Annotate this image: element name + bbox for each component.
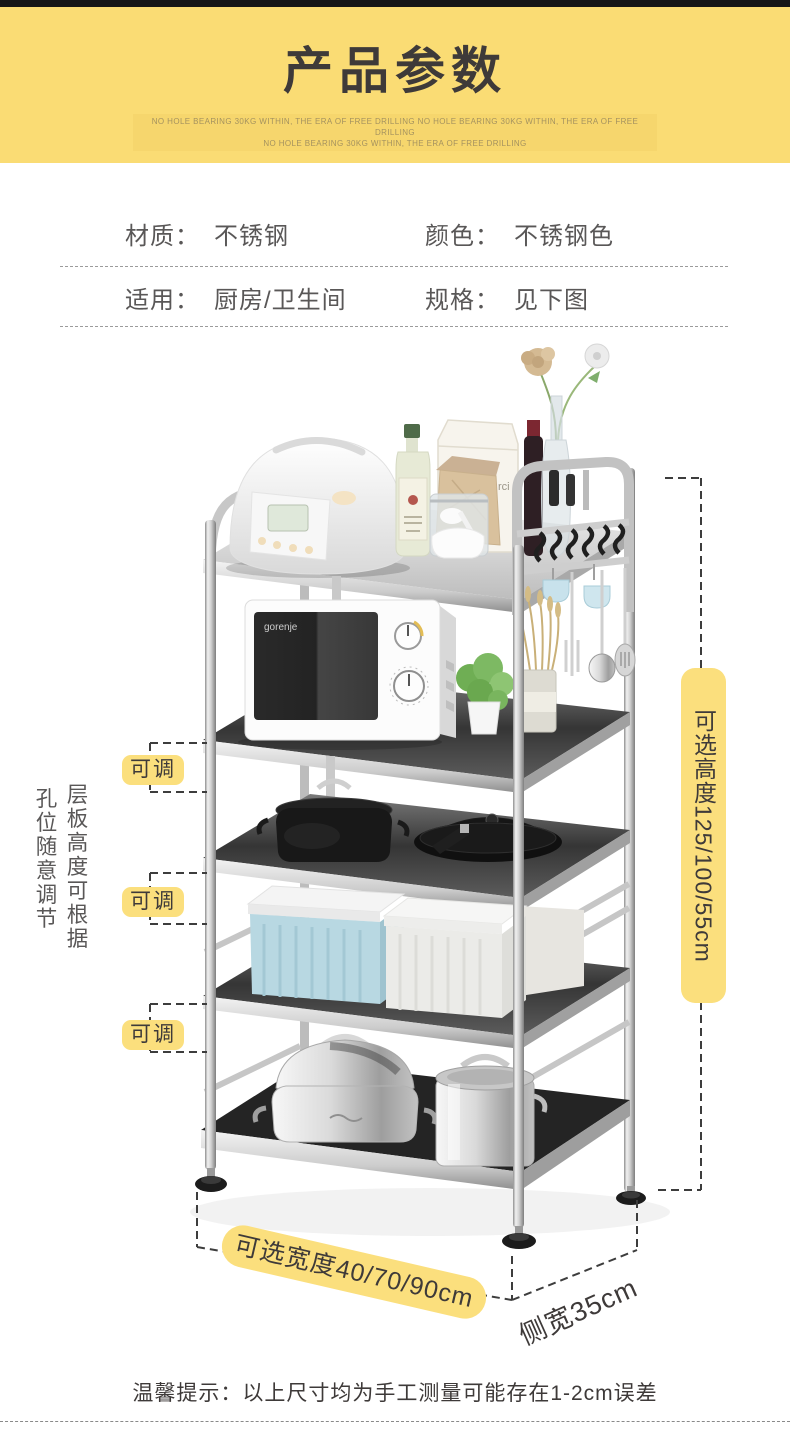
header-subtext-line2: NO HOLE BEARING 30KG WITHIN, THE ERA OF … xyxy=(133,138,657,149)
header: 产品参数 NO HOLE BEARING 30KG WITHIN, THE ER… xyxy=(0,7,790,163)
spec-material-label: 材质： xyxy=(125,216,200,251)
footer: 温馨提示：以上尺寸均为手工测量可能存在1-2cm误差 xyxy=(0,1360,790,1439)
knife-handle xyxy=(549,470,559,506)
oil-bottle xyxy=(396,424,430,556)
storage-box-back xyxy=(520,906,584,996)
spec-usage: 适用： 厨房/卫生间 xyxy=(60,280,425,315)
spec-row-1: 材质： 不锈钢 颜色： 不锈钢色 xyxy=(60,163,728,267)
left-note-column-2: 孔位随意调节 xyxy=(30,787,61,931)
glass-jar xyxy=(430,494,488,558)
spec-size: 规格： 见下图 xyxy=(425,280,589,315)
spec-usage-value: 厨房/卫生间 xyxy=(214,280,347,315)
microwave-brand: gorenje xyxy=(264,622,298,633)
spec-material: 材质： 不锈钢 xyxy=(60,216,425,251)
adjustable-label-3: 可调 xyxy=(122,1020,184,1050)
stock-pot xyxy=(436,1057,545,1166)
spec-color: 颜色： 不锈钢色 xyxy=(425,216,614,251)
foot-rear-right xyxy=(616,1186,646,1205)
spec-size-value: 见下图 xyxy=(514,280,589,315)
green-sprig xyxy=(588,371,600,383)
spec-color-value: 不锈钢色 xyxy=(514,216,614,251)
storage-box-blue xyxy=(248,886,404,1004)
header-subtext-line1: NO HOLE BEARING 30KG WITHIN, THE ERA OF … xyxy=(133,116,657,138)
product-photo: Le sac rci xyxy=(0,335,790,1360)
spec-size-label: 规格： xyxy=(425,280,500,315)
spec-color-label: 颜色： xyxy=(425,216,500,251)
adjustable-label-1: 可调 xyxy=(122,755,184,785)
storage-box-white xyxy=(384,898,526,1018)
spec-row-2: 适用： 厨房/卫生间 规格： 见下图 xyxy=(60,267,728,327)
spec-material-value: 不锈钢 xyxy=(214,216,289,251)
beige-flower xyxy=(521,347,555,376)
steel-rod xyxy=(583,470,589,510)
product-figure: Le sac rci xyxy=(0,335,790,1360)
hanging-utensils xyxy=(566,568,635,682)
adjustable-label-2: 可调 xyxy=(122,887,184,917)
page-title: 产品参数 xyxy=(0,7,790,102)
foot-front-left xyxy=(195,1168,227,1192)
sugar-jar xyxy=(432,528,485,558)
measurement-tip: 温馨提示：以上尺寸均为手工测量可能存在1-2cm误差 xyxy=(0,1360,790,1407)
spec-usage-label: 适用： xyxy=(125,280,200,315)
footer-divider xyxy=(0,1421,790,1422)
bag-text-2: rci xyxy=(498,481,510,493)
center-support xyxy=(332,576,341,602)
left-note-column-1: 层板高度可根据 xyxy=(61,783,92,951)
knife-handle xyxy=(566,474,575,506)
cooker-lcd xyxy=(268,505,308,531)
top-black-bar xyxy=(0,0,790,7)
rice-cooker xyxy=(226,438,410,578)
microwave: gorenje xyxy=(238,600,456,750)
spec-table: 材质： 不锈钢 颜色： 不锈钢色 适用： 厨房/卫生间 规格： 见下图 xyxy=(60,163,728,335)
height-option-label: 可选高度125/100/55cm xyxy=(681,668,726,1003)
white-flower xyxy=(585,344,609,368)
header-subtext-band: NO HOLE BEARING 30KG WITHIN, THE ERA OF … xyxy=(133,114,657,151)
